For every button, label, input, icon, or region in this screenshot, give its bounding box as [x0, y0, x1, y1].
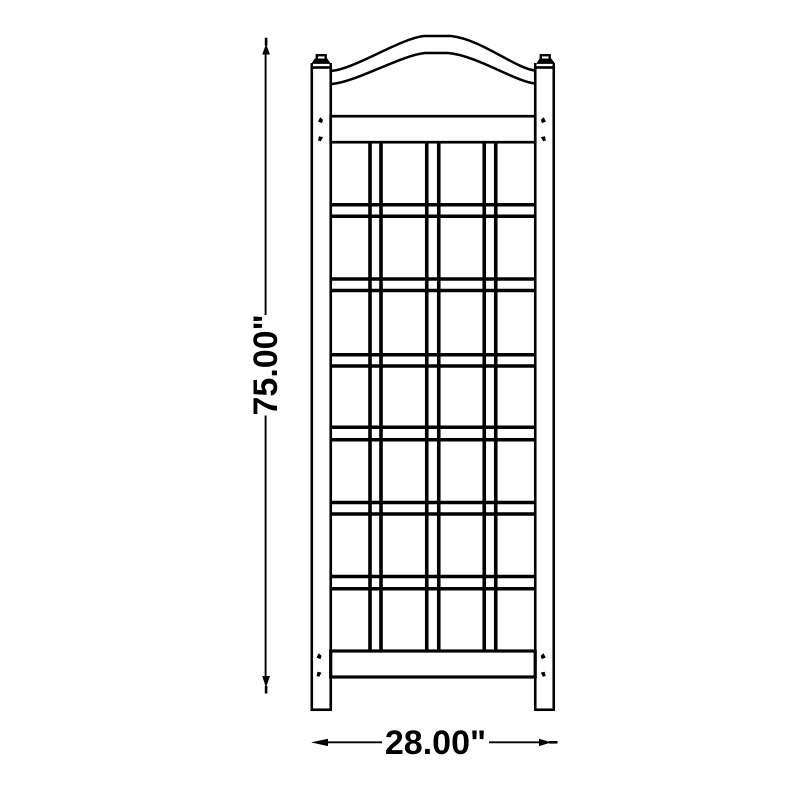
svg-text:75.00": 75.00": [247, 314, 285, 415]
svg-text:28.00": 28.00": [385, 724, 486, 762]
